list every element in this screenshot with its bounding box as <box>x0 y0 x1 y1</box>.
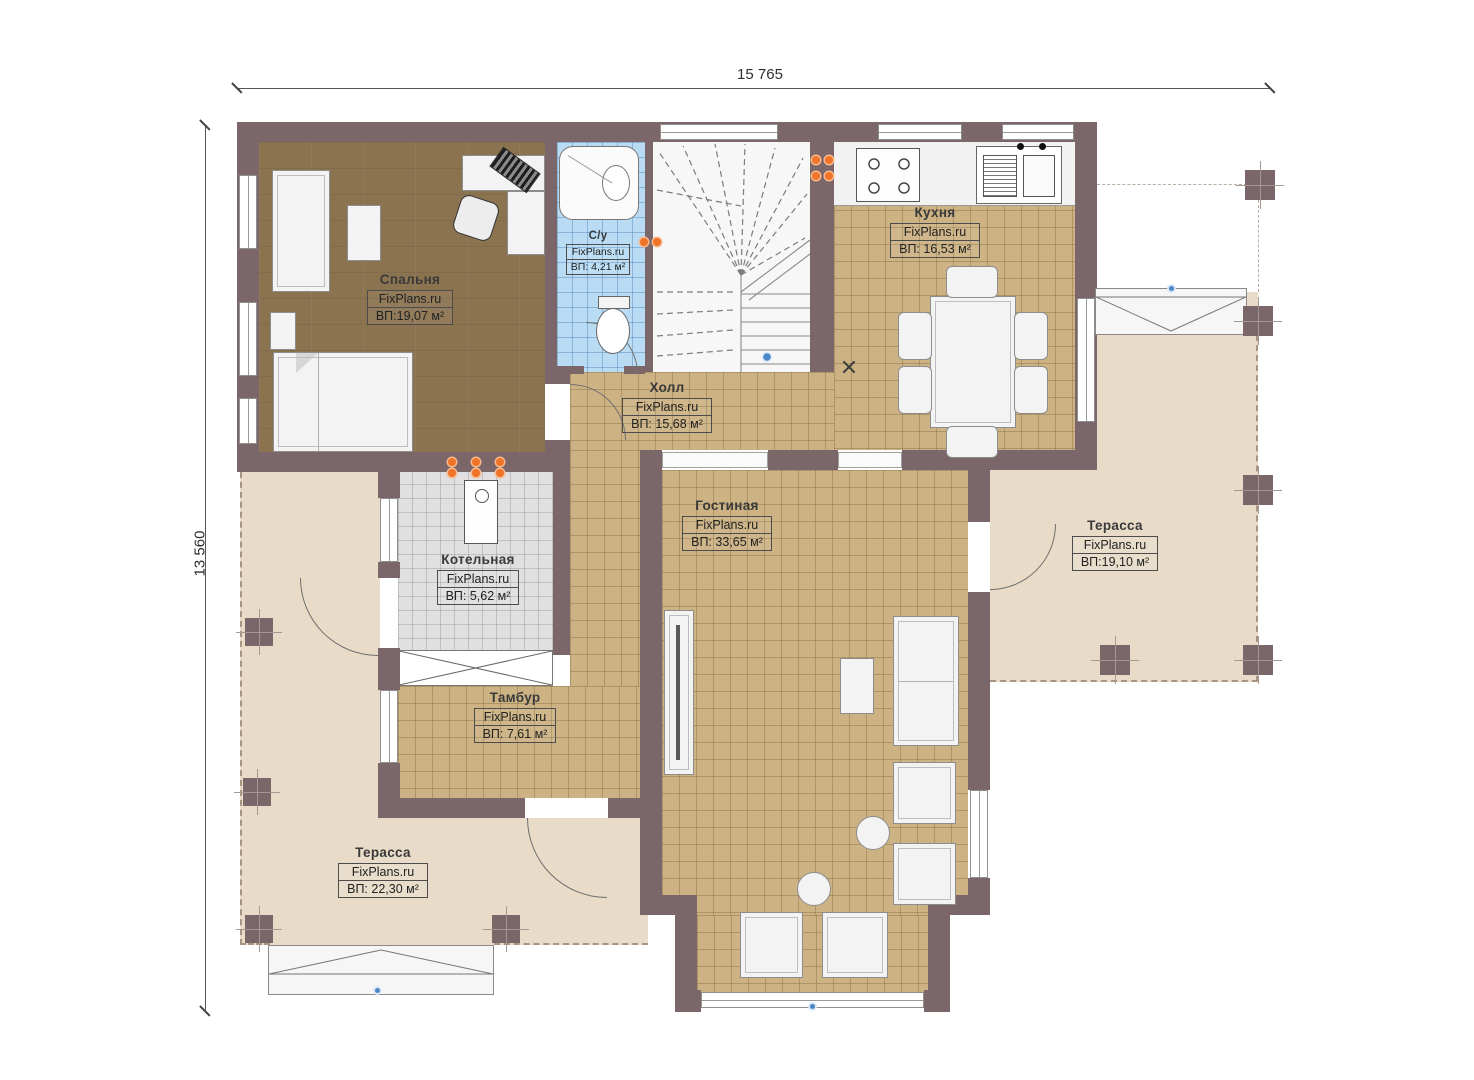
chair <box>898 366 932 414</box>
watermark: FixPlans.ru <box>368 291 452 307</box>
wall <box>378 648 400 690</box>
stove-icon <box>856 148 920 202</box>
pillar <box>1243 306 1273 336</box>
shower-drain <box>602 165 630 201</box>
wall <box>237 452 570 472</box>
watermark: FixPlans.ru <box>623 399 711 415</box>
tv-stand <box>664 610 694 775</box>
wall <box>378 470 400 498</box>
chair <box>1014 312 1048 360</box>
window <box>970 790 988 878</box>
wall <box>378 798 525 818</box>
toilet <box>596 308 630 354</box>
wall <box>545 440 570 452</box>
window <box>380 498 398 562</box>
wall <box>968 592 990 790</box>
wall <box>640 450 662 470</box>
roof-outline <box>1097 184 1247 185</box>
coffee-table <box>347 205 381 261</box>
pillar <box>1245 170 1275 200</box>
watermark: FixPlans.ru <box>891 224 979 240</box>
armchair <box>822 912 888 978</box>
level-marker <box>373 986 382 995</box>
wall <box>675 915 697 992</box>
room-name: Холл <box>592 380 742 395</box>
room-info-box: FixPlans.ru ВП: 16,53 м² <box>890 223 980 258</box>
bed-sheet-fold <box>296 353 318 373</box>
floor-living-bay <box>697 915 928 992</box>
door-gap <box>545 384 570 440</box>
window <box>1002 124 1074 140</box>
faucet-dot <box>1017 143 1024 150</box>
window <box>1077 298 1095 422</box>
sink-basin <box>1023 155 1055 197</box>
room-info-box: FixPlans.ru ВП: 22,30 м² <box>338 863 428 898</box>
room-label-hall: Холл FixPlans.ru ВП: 15,68 м² <box>592 380 742 433</box>
roof-outline <box>1258 200 1259 292</box>
wall <box>557 366 584 374</box>
floor-plan: 15 765 13 560 <box>0 0 1474 1080</box>
door-gap <box>525 800 608 816</box>
chair <box>946 426 998 458</box>
faucet-dot <box>1039 143 1046 150</box>
room-name: Терасса <box>308 845 458 860</box>
chair <box>1014 366 1048 414</box>
built-in-wardrobe <box>398 650 553 686</box>
watermark: FixPlans.ru <box>475 709 556 725</box>
staircase <box>653 142 810 372</box>
room-label-terrace-right: Терасса FixPlans.ru ВП:19,10 м² <box>1040 518 1190 571</box>
wall <box>968 470 990 522</box>
dining-table <box>930 296 1016 428</box>
room-info-box: FixPlans.ru ВП: 7,61 м² <box>474 708 557 743</box>
wall <box>645 142 653 372</box>
wall <box>968 878 990 915</box>
boiler-dial <box>475 489 489 503</box>
room-label-boiler-room: Котельная FixPlans.ru ВП: 5,62 м² <box>408 552 548 605</box>
pillar <box>1100 645 1130 675</box>
sink-icon <box>976 146 1062 204</box>
window <box>239 302 257 376</box>
room-area: ВП: 4,21 м² <box>567 259 629 274</box>
pillar <box>245 618 273 646</box>
pillar <box>1243 475 1273 505</box>
armchair <box>893 762 956 824</box>
room-area: ВП: 33,65 м² <box>683 533 771 550</box>
round-table <box>797 872 831 906</box>
door-gap <box>380 578 398 648</box>
wall <box>378 562 400 578</box>
sofa <box>272 170 330 292</box>
terrace-steps <box>1095 288 1247 335</box>
floor-cross-mark <box>842 360 856 374</box>
chair <box>898 312 932 360</box>
room-label-terrace-left: Терасса FixPlans.ru ВП: 22,30 м² <box>308 845 458 898</box>
watermark: FixPlans.ru <box>438 571 519 587</box>
nightstand <box>270 312 296 350</box>
utility-indicators <box>448 458 514 480</box>
room-info-box: FixPlans.ru ВП:19,10 м² <box>1072 536 1158 571</box>
window <box>239 175 257 249</box>
door-gap <box>970 522 988 592</box>
window <box>660 124 778 140</box>
wall <box>675 990 701 1012</box>
watermark: FixPlans.ru <box>567 245 629 259</box>
room-name: Кухня <box>860 205 1010 220</box>
wall <box>608 798 648 818</box>
room-name: Спальня <box>335 272 485 287</box>
room-name: Тамбур <box>440 690 590 705</box>
room-info-box: FixPlans.ru ВП: 15,68 м² <box>622 398 712 433</box>
dimension-line-top <box>237 88 1270 89</box>
window <box>239 398 257 444</box>
tv-icon <box>676 625 680 760</box>
armchair <box>740 912 803 978</box>
room-info-box: FixPlans.ru ВП: 4,21 м² <box>566 244 630 275</box>
room-label-kitchen: Кухня FixPlans.ru ВП: 16,53 м² <box>860 205 1010 258</box>
dimension-height-label: 13 560 <box>192 509 209 599</box>
dimension-width-label: 15 765 <box>700 66 820 83</box>
sofa-cushion-line <box>898 681 954 682</box>
room-area: ВП: 16,53 м² <box>891 240 979 257</box>
pillar <box>243 778 271 806</box>
wall <box>928 915 950 992</box>
bed <box>273 352 413 452</box>
room-name: Терасса <box>1040 518 1190 533</box>
desk <box>507 191 545 255</box>
boiler <box>464 480 498 544</box>
wall <box>553 470 570 655</box>
room-label-bedroom: Спальня FixPlans.ru ВП:19,07 м² <box>335 272 485 325</box>
terrace-edge <box>990 680 1258 682</box>
watermark: FixPlans.ru <box>1073 537 1157 553</box>
room-area: ВП:19,10 м² <box>1073 553 1157 570</box>
watermark: FixPlans.ru <box>339 864 427 880</box>
room-label-living-room: Гостиная FixPlans.ru ВП: 33,65 м² <box>652 498 802 551</box>
room-info-box: FixPlans.ru ВП: 5,62 м² <box>437 570 520 605</box>
watermark: FixPlans.ru <box>683 517 771 533</box>
room-info-box: FixPlans.ru ВП: 33,65 м² <box>682 516 772 551</box>
room-area: ВП: 7,61 м² <box>475 725 556 742</box>
room-info-box: FixPlans.ru ВП:19,07 м² <box>367 290 453 325</box>
utility-indicators <box>812 156 836 182</box>
side-table <box>840 658 874 714</box>
room-name: Гостиная <box>652 498 802 513</box>
terrace-edge <box>240 472 242 945</box>
window <box>878 124 962 140</box>
pillar <box>1243 645 1273 675</box>
terrace-steps <box>268 945 494 995</box>
level-marker <box>1167 284 1176 293</box>
sink-drainer <box>983 155 1017 197</box>
pillar <box>245 915 273 943</box>
bed-divider <box>318 353 319 451</box>
chair <box>946 266 998 298</box>
room-area: ВП:19,07 м² <box>368 307 452 324</box>
wall <box>924 990 950 1012</box>
wardrobe-cross <box>399 651 552 685</box>
pillar <box>492 915 520 943</box>
room-area: ВП: 22,30 м² <box>339 880 427 897</box>
round-table <box>856 816 890 850</box>
room-label-vestibule: Тамбур FixPlans.ru ВП: 7,61 м² <box>440 690 590 743</box>
room-label-bathroom: С/у FixPlans.ru ВП: 4,21 м² <box>552 230 644 275</box>
room-name: Котельная <box>408 552 548 567</box>
sofa <box>893 616 959 746</box>
window <box>380 690 398 763</box>
wall <box>768 450 838 470</box>
terrace-edge <box>240 943 270 945</box>
room-area: ВП: 5,62 м² <box>438 587 519 604</box>
cased-opening <box>838 452 902 468</box>
wall <box>640 895 697 915</box>
cased-opening <box>662 452 768 468</box>
terrace-edge <box>494 943 648 945</box>
floor-hall-corridor <box>570 450 640 686</box>
room-name: С/у <box>552 230 644 242</box>
armchair <box>893 843 956 905</box>
room-area: ВП: 15,68 м² <box>623 415 711 432</box>
shower <box>559 146 639 220</box>
level-marker <box>808 1002 817 1011</box>
